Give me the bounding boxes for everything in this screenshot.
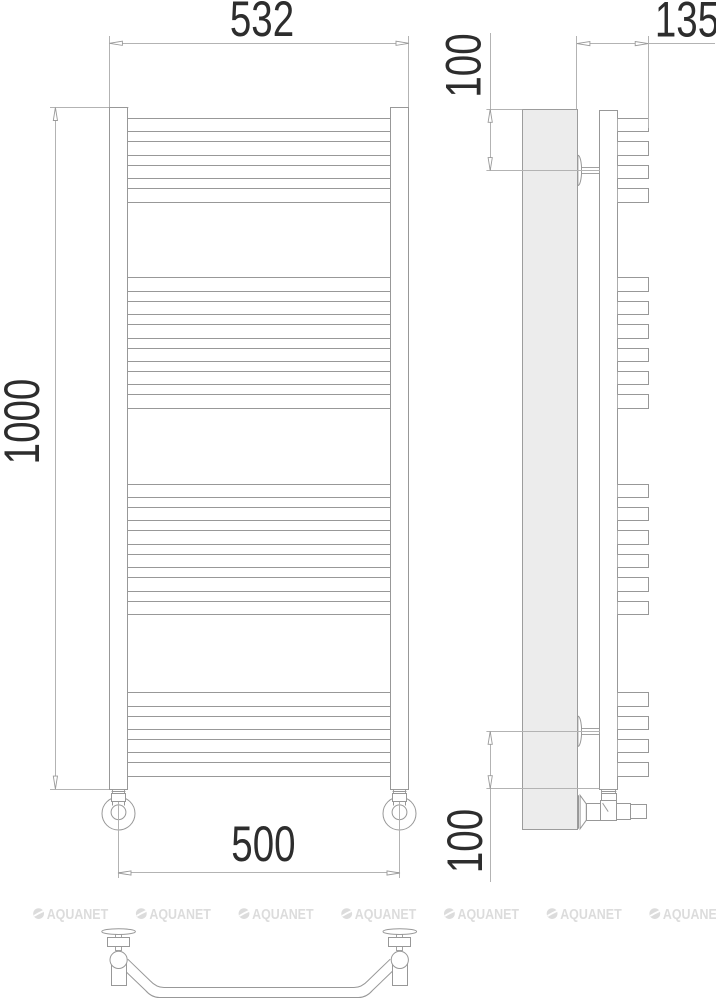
svg-text:500: 500 xyxy=(231,817,295,872)
svg-text:532: 532 xyxy=(230,0,294,47)
svg-text:135: 135 xyxy=(655,0,716,48)
svg-text:AQUANET: AQUANET xyxy=(458,906,520,922)
svg-text:AQUANET: AQUANET xyxy=(252,906,314,922)
svg-text:AQUANET: AQUANET xyxy=(560,906,622,922)
svg-text:AQUANET: AQUANET xyxy=(149,906,211,922)
svg-text:100: 100 xyxy=(437,33,492,97)
svg-text:AQUANET: AQUANET xyxy=(47,906,109,922)
svg-text:AQUANET: AQUANET xyxy=(663,906,716,922)
svg-text:1000: 1000 xyxy=(0,379,50,465)
svg-text:AQUANET: AQUANET xyxy=(355,906,417,922)
svg-text:100: 100 xyxy=(438,809,493,873)
